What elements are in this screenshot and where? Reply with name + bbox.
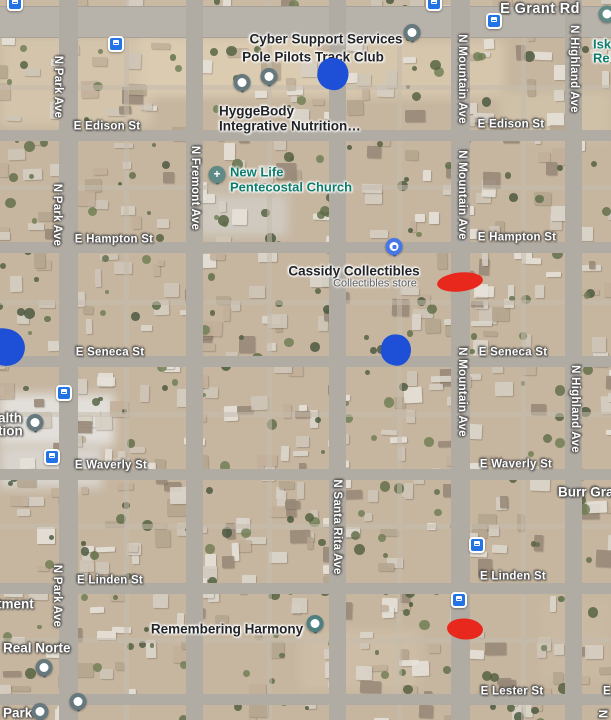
- poi-pin-icon[interactable]: [27, 414, 44, 438]
- blue-annotation-marker[interactable]: [0, 326, 27, 368]
- pin-head: [32, 703, 49, 720]
- bus-glyph: [491, 17, 497, 22]
- shopping-pin-icon[interactable]: [386, 238, 403, 262]
- pin-dot: [408, 28, 417, 37]
- bus-glyph: [113, 40, 119, 45]
- poi-pin-icon[interactable]: [261, 68, 278, 92]
- bus-glyph: [49, 453, 55, 458]
- shopping-bag-icon: [390, 242, 399, 251]
- poi-pin-icon[interactable]: [404, 24, 421, 48]
- blue-annotation-marker[interactable]: [379, 333, 413, 368]
- cross-icon: +: [209, 166, 226, 183]
- pin-head: [70, 693, 87, 710]
- poi-pin-icon[interactable]: [36, 659, 53, 683]
- bus-glyph: [456, 596, 462, 601]
- pin-dot: [265, 72, 274, 81]
- blue-annotation-marker[interactable]: [315, 56, 350, 92]
- poi-pin-icon[interactable]: [70, 693, 87, 717]
- bus-stop-icon[interactable]: [451, 592, 467, 608]
- red-annotation-marker[interactable]: [436, 270, 484, 294]
- pin-head: [261, 68, 278, 85]
- pin-dot: [40, 663, 49, 672]
- bus-glyph: [12, 0, 18, 4]
- poi-dot-pin-icon[interactable]: [599, 6, 611, 23]
- bus-glyph: [474, 541, 480, 546]
- red-annotation-marker[interactable]: [446, 617, 483, 640]
- pin-head: [386, 238, 403, 255]
- satellite-map[interactable]: E Grant RdE Edison StE Edison StE Hampto…: [0, 0, 611, 720]
- church-pin-icon[interactable]: +: [209, 166, 226, 190]
- pin-head: [307, 615, 324, 632]
- pin-head: [404, 24, 421, 41]
- bus-stop-icon[interactable]: [44, 449, 60, 465]
- pin-dot: [311, 619, 320, 628]
- pin-head: +: [209, 166, 226, 183]
- pin-dot: [31, 418, 40, 427]
- bus-stop-icon[interactable]: [108, 36, 124, 52]
- memorial-pin-icon[interactable]: [307, 615, 324, 639]
- poi-pin-icon[interactable]: [234, 74, 251, 98]
- pin-dot: [238, 78, 247, 87]
- bus-glyph: [431, 0, 437, 4]
- bus-stop-icon[interactable]: [7, 0, 23, 11]
- bus-stop-icon[interactable]: [469, 537, 485, 553]
- bus-stop-icon[interactable]: [426, 0, 442, 11]
- map-markers: +: [0, 0, 611, 720]
- pin-head: [234, 74, 251, 91]
- pin-head: [36, 659, 53, 676]
- pin-dot: [36, 707, 45, 716]
- pin-head: [599, 6, 611, 23]
- bus-glyph: [61, 389, 67, 394]
- pin-dot: [603, 10, 611, 19]
- pin-head: [27, 414, 44, 431]
- poi-pin-icon[interactable]: [32, 703, 49, 720]
- bus-stop-icon[interactable]: [486, 13, 502, 29]
- pin-dot: [74, 697, 83, 706]
- bus-stop-icon[interactable]: [56, 385, 72, 401]
